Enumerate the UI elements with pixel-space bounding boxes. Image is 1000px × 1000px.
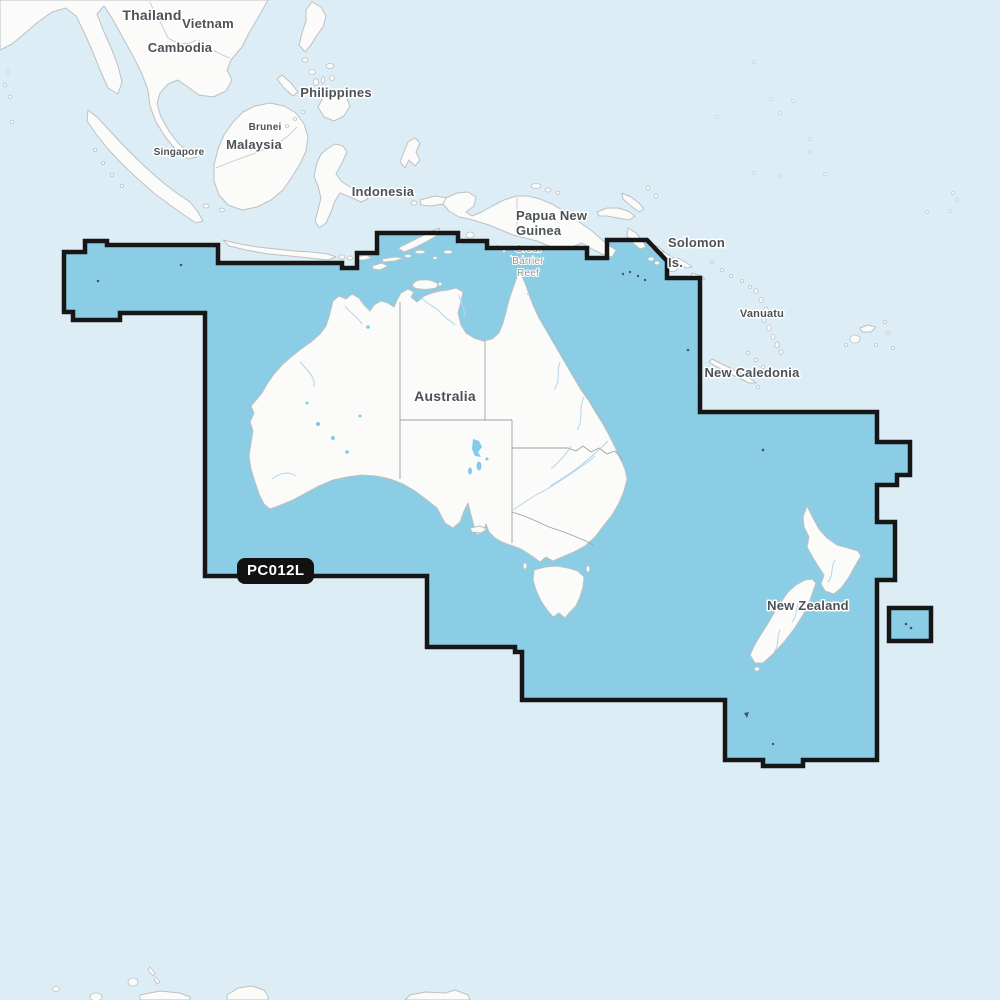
label-thailand: Thailand bbox=[122, 7, 181, 23]
label-new-caledonia: New Caledonia bbox=[704, 365, 800, 380]
label-philippines: Philippines bbox=[300, 85, 372, 100]
map-stage: GreatBarrierReef ThailandVietnamCambodia… bbox=[0, 0, 1000, 1000]
label-new-zealand: New Zealand bbox=[767, 598, 849, 613]
label-australia: Australia bbox=[414, 388, 476, 404]
label-malaysia: Malaysia bbox=[226, 137, 282, 152]
label-vietnam: Vietnam bbox=[182, 16, 234, 31]
label-brunei: Brunei bbox=[249, 122, 282, 133]
coverage-chatham-area[interactable] bbox=[889, 608, 931, 641]
island-stewart bbox=[755, 667, 760, 671]
label-singapore: Singapore bbox=[154, 147, 205, 158]
label-indonesia: Indonesia bbox=[352, 184, 415, 199]
chart-code-badge[interactable]: PC012L bbox=[237, 558, 314, 584]
label-cambodia: Cambodia bbox=[148, 40, 213, 55]
label-vanuatu: Vanuatu bbox=[740, 308, 784, 320]
world-map-canvas[interactable]: GreatBarrierReef ThailandVietnamCambodia… bbox=[0, 0, 1000, 1000]
